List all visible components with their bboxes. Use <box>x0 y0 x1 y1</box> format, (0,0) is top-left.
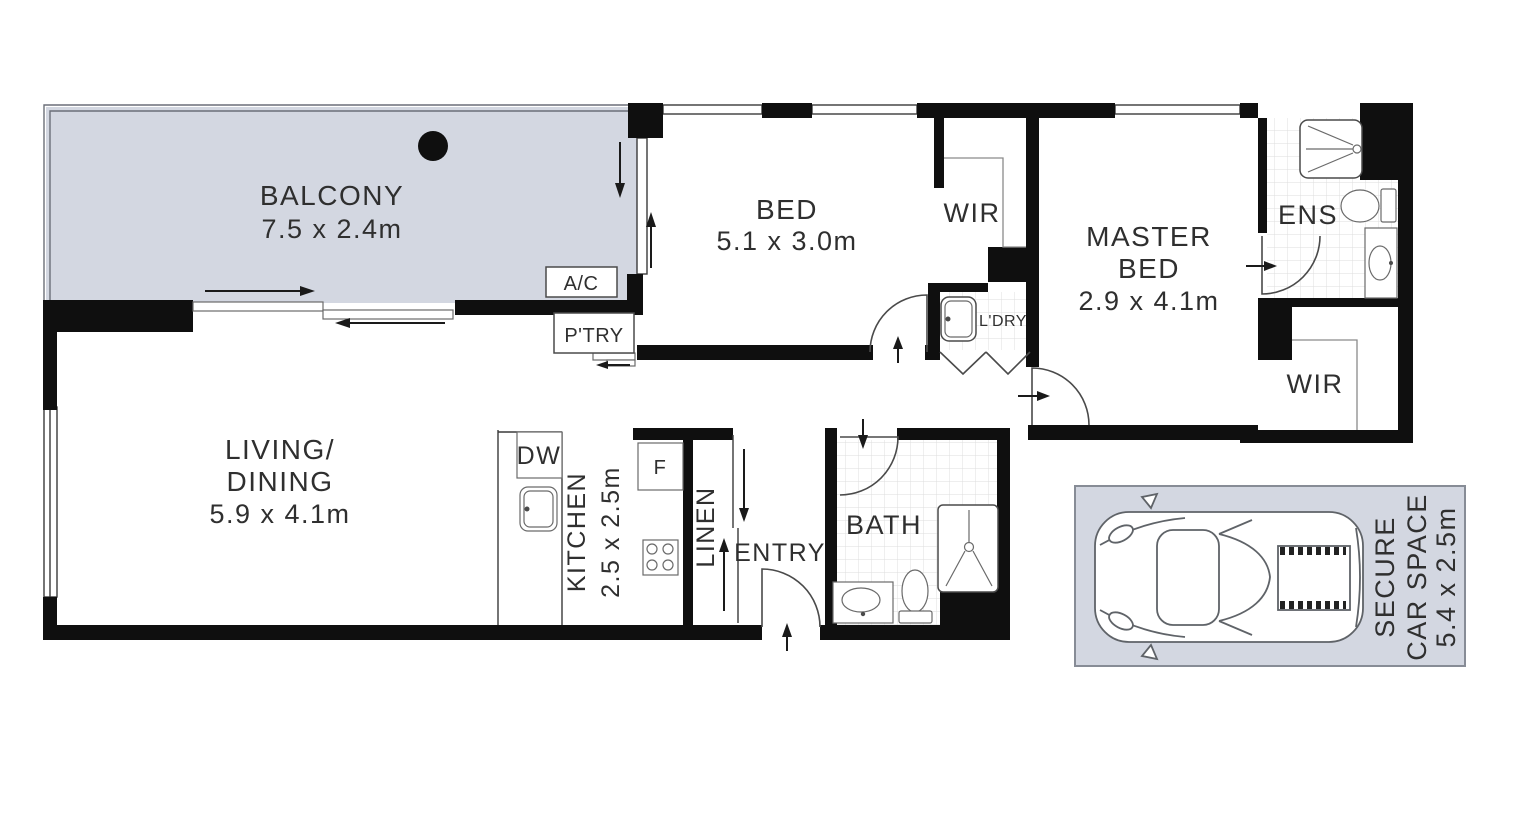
living-label-2: DINING <box>227 466 334 497</box>
master-bed-label-1: MASTER <box>1086 221 1212 252</box>
ac-label: A/C <box>564 273 599 295</box>
entry-label: ENTRY <box>734 539 826 567</box>
bath-label: BATH <box>846 510 922 540</box>
dishwasher-label: DW <box>517 442 562 470</box>
bed-window-2 <box>812 105 917 114</box>
wir2-label: WIR <box>1287 369 1344 399</box>
bed-balcony-window <box>637 138 647 274</box>
ens-label: ENS <box>1278 200 1338 230</box>
floor-plan-svg: BALCONY 7.5 x 2.4m BED 5.1 x 3.0m WIR MA… <box>0 0 1534 838</box>
ens-basin <box>1369 246 1391 280</box>
ens-toilet <box>1341 190 1379 222</box>
living-label-1: LIVING/ <box>225 434 335 465</box>
car-icon <box>1095 494 1363 659</box>
floor-plan-page: BALCONY 7.5 x 2.4m BED 5.1 x 3.0m WIR MA… <box>0 0 1534 838</box>
kitchen-dims: 2.5 x 2.5m <box>597 466 625 598</box>
car-space-label-1: SECURE <box>1370 516 1400 638</box>
living-dims: 5.9 x 4.1m <box>209 499 350 529</box>
master-bed-window <box>1115 105 1240 114</box>
pantry-slider-step-1 <box>593 353 635 360</box>
fridge-label: F <box>654 457 667 479</box>
pantry-label: P'TRY <box>564 325 623 347</box>
balcony-label: BALCONY <box>260 180 404 211</box>
entry-door <box>762 569 820 627</box>
bed-dims: 5.1 x 3.0m <box>716 226 857 256</box>
hall-cavity-slider <box>733 435 738 623</box>
linen-label: LINEN <box>692 486 720 567</box>
car-space-label-2: CAR SPACE <box>1402 493 1432 661</box>
balcony-dims: 7.5 x 2.4m <box>261 214 402 244</box>
laundry-bifold-doors <box>940 352 1030 374</box>
laundry-label: L'DRY <box>979 313 1027 330</box>
balcony-slider-panel-1 <box>193 302 323 311</box>
wir-label: WIR <box>944 198 1001 228</box>
kitchen-label: KITCHEN <box>563 472 591 592</box>
bed-label: BED <box>756 194 818 225</box>
bath-toilet <box>902 570 928 612</box>
car-space-dims: 5.4 x 2.5m <box>1431 506 1461 647</box>
bath-basin <box>842 588 880 612</box>
bed-window <box>663 105 762 114</box>
balcony-column-dot <box>418 131 448 161</box>
master-bed-label-2: BED <box>1118 253 1180 284</box>
master-bed-dims: 2.9 x 4.1m <box>1078 286 1219 316</box>
balcony-slider-panel-2 <box>323 310 453 319</box>
laundry-fixtures <box>941 297 976 341</box>
